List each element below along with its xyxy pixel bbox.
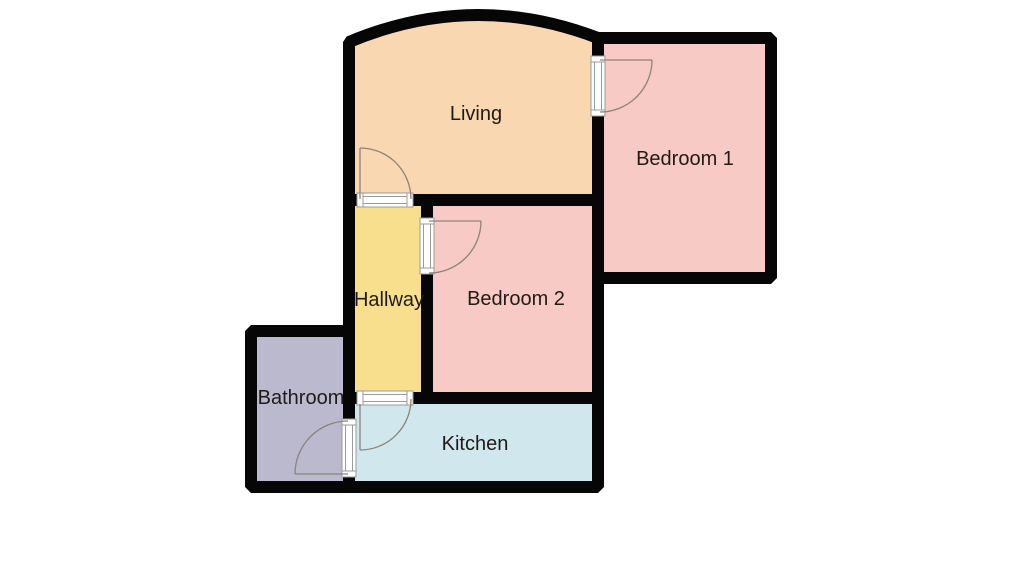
kitchen-label: Kitchen: [442, 433, 509, 455]
door-opening: [357, 193, 413, 207]
floorplan-page: Living Bedroom 1 Hallway Bedroom 2 Bathr…: [0, 0, 1024, 576]
bathroom-label: Bathroom: [258, 387, 345, 409]
living-label: Living: [450, 103, 502, 125]
room-bathroom: [251, 331, 349, 487]
door-opening: [342, 419, 356, 477]
hallway-label: Hallway: [354, 289, 424, 311]
door-opening: [591, 56, 605, 116]
bedroom1-label: Bedroom 1: [636, 148, 734, 170]
door-opening: [420, 218, 434, 274]
bedroom2-label: Bedroom 2: [467, 288, 565, 310]
door-opening: [357, 391, 413, 405]
floorplan-canvas: Living Bedroom 1 Hallway Bedroom 2 Bathr…: [0, 0, 1024, 576]
